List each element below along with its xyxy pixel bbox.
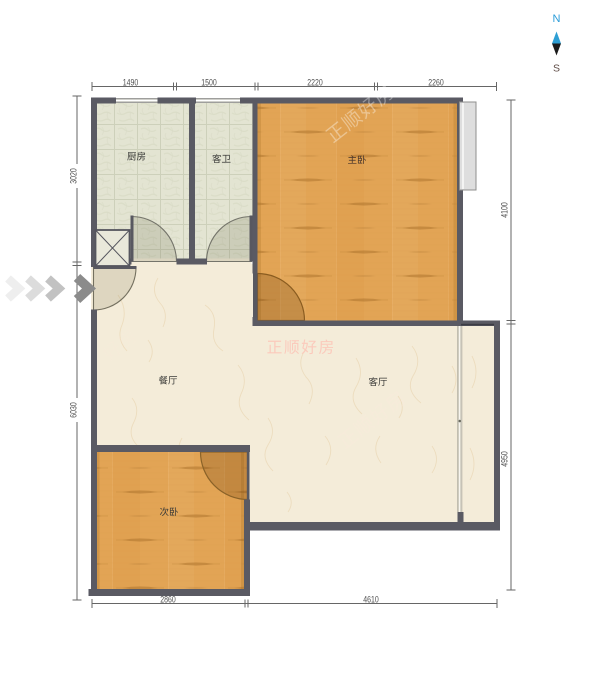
svg-text:2260: 2260 <box>428 78 444 88</box>
svg-text:3020: 3020 <box>69 168 79 184</box>
svg-text:6030: 6030 <box>69 402 79 418</box>
svg-text:1490: 1490 <box>123 78 139 88</box>
svg-text:N: N <box>553 13 561 25</box>
svg-text:2220: 2220 <box>307 78 323 88</box>
svg-text:4950: 4950 <box>500 451 510 467</box>
svg-text:4610: 4610 <box>363 595 379 605</box>
svg-text:4100: 4100 <box>500 202 510 218</box>
svg-text:2860: 2860 <box>160 595 176 605</box>
svg-text:S: S <box>553 63 560 75</box>
svg-text:1500: 1500 <box>201 78 217 88</box>
